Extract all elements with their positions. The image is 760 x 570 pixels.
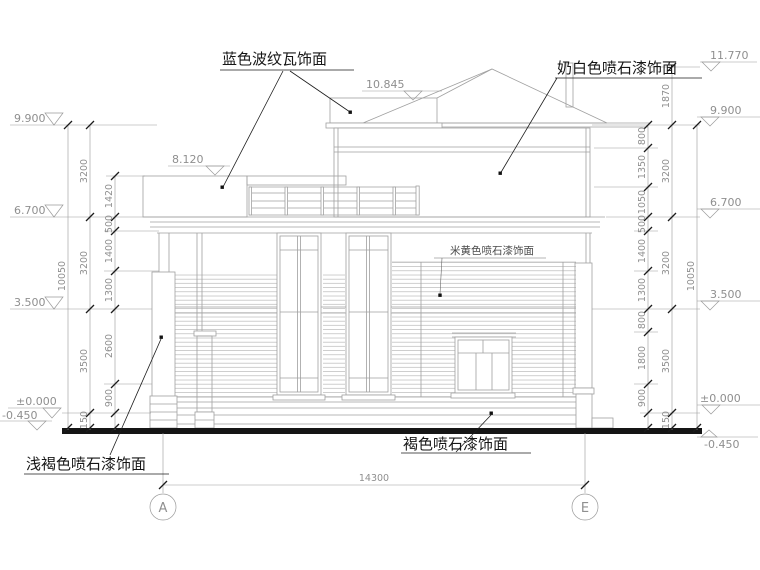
elevation-right-zero: ±0.000 bbox=[700, 392, 741, 405]
elevation-lower-roof: 8.120 bbox=[172, 153, 204, 166]
dim-left-inner-5: 2600 bbox=[104, 334, 115, 358]
dim-right-inner-4: 500 bbox=[637, 215, 648, 233]
second-floor-slab bbox=[143, 217, 605, 233]
terrace-parapet bbox=[143, 176, 346, 217]
finish-label-blue-tile: 蓝色波纹瓦饰面 bbox=[222, 50, 327, 68]
dim-left-floor-4: 150 bbox=[79, 411, 90, 429]
left-dimension-chains: 10050 3200 3200 3500 150 1420 500 1400 1… bbox=[10, 121, 159, 432]
base-bands bbox=[152, 397, 592, 424]
axis-letter-a: A bbox=[159, 501, 168, 516]
third-floor-wall bbox=[334, 128, 590, 217]
dim-right-inner-5: 1400 bbox=[637, 239, 648, 263]
dim-right-floor-3: 3500 bbox=[661, 349, 672, 373]
dim-left-floor-1: 3200 bbox=[79, 159, 90, 183]
elevation-left-zero: ±0.000 bbox=[16, 395, 57, 408]
dim-left-inner-6: 900 bbox=[104, 389, 115, 407]
dim-left-inner-2: 500 bbox=[104, 215, 115, 233]
elevation-right-3500: 3.500 bbox=[710, 288, 742, 301]
dim-left-inner-1: 1420 bbox=[104, 184, 115, 208]
window-bay-2 bbox=[346, 233, 391, 395]
dim-right-inner-8: 1800 bbox=[637, 346, 648, 370]
elevation-peak: 11.770 bbox=[710, 49, 749, 62]
dim-right-floor-1: 3200 bbox=[661, 159, 672, 183]
dim-right-floor-2: 3200 bbox=[661, 251, 672, 275]
elevation-right-9900: 9.900 bbox=[710, 104, 742, 117]
ground-line bbox=[62, 428, 702, 434]
axis-bubble-e: E bbox=[572, 494, 598, 520]
dim-right-inner-9: 900 bbox=[637, 389, 648, 407]
dim-overall-width: 14300 bbox=[359, 473, 389, 484]
dim-right-inner-2: 1350 bbox=[637, 155, 648, 179]
dim-left-inner-3: 1400 bbox=[104, 239, 115, 263]
dim-left-total: 10050 bbox=[57, 261, 68, 291]
brick-pier-e bbox=[573, 263, 613, 428]
finish-label-light-brown: 浅褐色喷石漆饰面 bbox=[26, 455, 146, 473]
finish-label-milky-white: 奶白色喷石漆饰面 bbox=[557, 59, 677, 77]
elevation-upper-roof: 10.845 bbox=[366, 78, 405, 91]
dim-right-inner-3: 1050 bbox=[637, 190, 648, 214]
dim-right-floor-0: 1870 bbox=[661, 84, 672, 108]
finish-label-beige: 米黄色喷石漆饰面 bbox=[450, 244, 534, 257]
axis-bubble-a: A bbox=[150, 494, 176, 520]
building-elevation-drawing: 10050 3200 3200 3500 150 1420 500 1400 1… bbox=[0, 0, 760, 570]
elevation-left-6700: 6.700 bbox=[14, 204, 46, 217]
finish-label-brown: 褐色喷石漆饰面 bbox=[403, 435, 508, 453]
dim-right-inner-1: 800 bbox=[637, 127, 648, 145]
elevation-left-3500: 3.500 bbox=[14, 296, 46, 309]
dim-left-inner-4: 1300 bbox=[104, 278, 115, 302]
building-elevation-sheet: 10050 3200 3200 3500 150 1420 500 1400 1… bbox=[0, 0, 760, 570]
bottom-dimension: 14300 bbox=[159, 433, 589, 493]
ground-floor-window bbox=[451, 333, 516, 398]
upper-parapet bbox=[330, 98, 437, 123]
dim-left-floor-3: 3500 bbox=[79, 349, 90, 373]
elevation-right-ground: -0.450 bbox=[704, 438, 739, 451]
elevation-right-6700: 6.700 bbox=[710, 196, 742, 209]
dim-right-total: 10050 bbox=[686, 261, 697, 291]
dim-right-inner-6: 1300 bbox=[637, 278, 648, 302]
dim-left-floor-2: 3200 bbox=[79, 251, 90, 275]
right-dimension-chains: 10050 1870 3200 3200 3500 150 800 1350 1… bbox=[592, 63, 701, 432]
axis-letter-e: E bbox=[581, 501, 589, 516]
dim-right-floor-4: 150 bbox=[661, 411, 672, 429]
window-bay-1 bbox=[277, 233, 321, 395]
elevation-left-9900: 9.900 bbox=[14, 112, 46, 125]
elevation-left-ground: -0.450 bbox=[2, 409, 37, 422]
dim-right-inner-7: 800 bbox=[637, 311, 648, 329]
brick-pier-a bbox=[150, 272, 177, 428]
